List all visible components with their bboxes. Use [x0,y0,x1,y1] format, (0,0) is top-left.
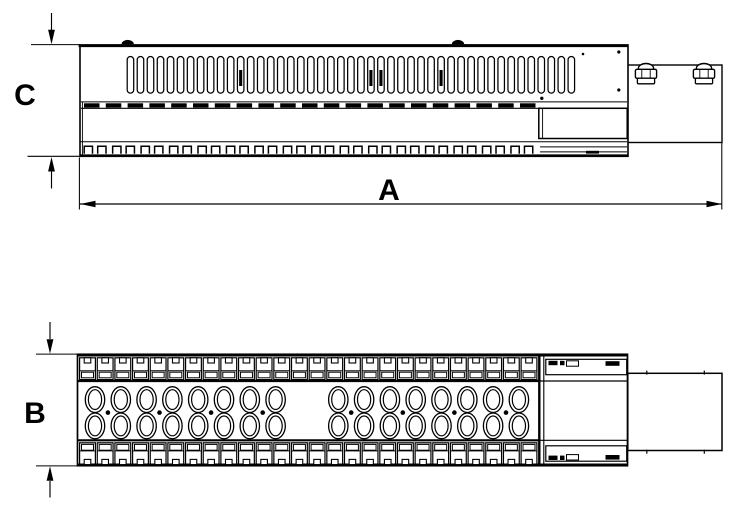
vent-grille [127,57,574,94]
dimension-label-b: B [24,397,46,430]
dimension-label-a: A [378,174,400,207]
plan-view: B [24,322,722,498]
technical-drawing: C A B [0,0,750,506]
side-view: C A [14,13,722,210]
tail-bracket [628,371,722,454]
dimension-label-c: C [14,79,36,112]
drawing-canvas: C A B [0,0,750,506]
pipe-fitting-left [635,64,656,84]
pipe-fitting-right [693,64,714,84]
